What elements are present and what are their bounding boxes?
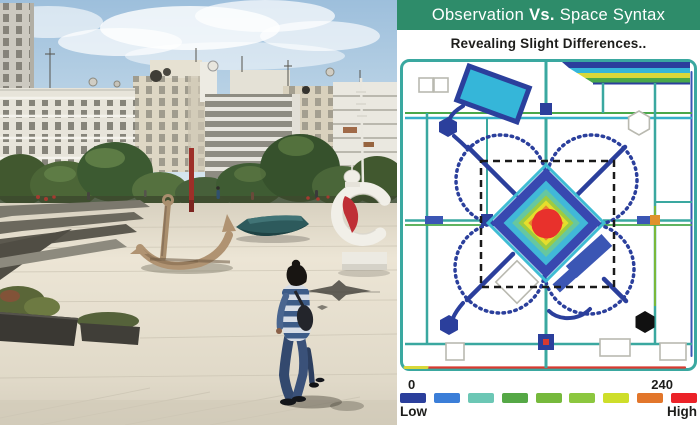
colorbar-max-value: 240 <box>651 377 673 392</box>
legend-swatch <box>400 393 426 403</box>
satellite-dish-icon <box>163 68 171 76</box>
satellite-dish-icon <box>114 81 120 87</box>
syntax-heatmap-figure <box>397 56 700 375</box>
colorbar-min-value: 0 <box>408 377 415 392</box>
satellite-dish-icon <box>89 78 97 86</box>
colorbar-low-label: Low <box>400 404 427 419</box>
legend-swatch <box>637 393 663 403</box>
panel-title: ObservationVs.Space Syntax <box>432 6 665 25</box>
colorbar-legend: 0 240 Low High <box>397 375 700 425</box>
legend-swatch <box>468 393 494 403</box>
outline-rect <box>600 339 630 356</box>
figure: ObservationVs.Space Syntax Revealing Sli… <box>0 0 700 425</box>
satellite-dish-icon <box>302 86 310 94</box>
colorbar-swatches <box>397 393 700 403</box>
plaza-photo <box>0 0 397 425</box>
title-left: Observation <box>432 6 524 24</box>
legend-swatch <box>536 393 562 403</box>
outline-rect <box>660 343 686 360</box>
red-pole <box>189 148 194 212</box>
title-vs: Vs. <box>529 6 555 24</box>
outline-rect <box>446 343 464 360</box>
satellite-dish-icon <box>326 68 334 76</box>
hand <box>276 328 282 334</box>
panel-title-bar: ObservationVs.Space Syntax <box>397 0 700 30</box>
dome <box>344 170 360 184</box>
satellite-dish-icon <box>150 70 162 82</box>
panel-subtitle: Revealing Slight Differences.. <box>397 30 700 56</box>
legend-swatch <box>603 393 629 403</box>
outline-square <box>434 78 448 92</box>
legend-swatch <box>502 393 528 403</box>
plaza-photo-art <box>0 0 397 425</box>
legend-swatch <box>569 393 595 403</box>
legend-swatch <box>434 393 460 403</box>
syntax-heatmap-art <box>397 56 700 375</box>
satellite-dish-icon <box>208 61 218 71</box>
legend-swatch <box>671 393 697 403</box>
shoe <box>292 396 306 402</box>
space-syntax-panel: ObservationVs.Space Syntax Revealing Sli… <box>397 0 700 425</box>
outline-square <box>419 78 433 92</box>
boat-sculpture <box>236 215 310 243</box>
title-right: Space Syntax <box>560 6 665 24</box>
outline-hexagon <box>629 111 650 135</box>
colorbar-high-label: High <box>667 404 697 419</box>
